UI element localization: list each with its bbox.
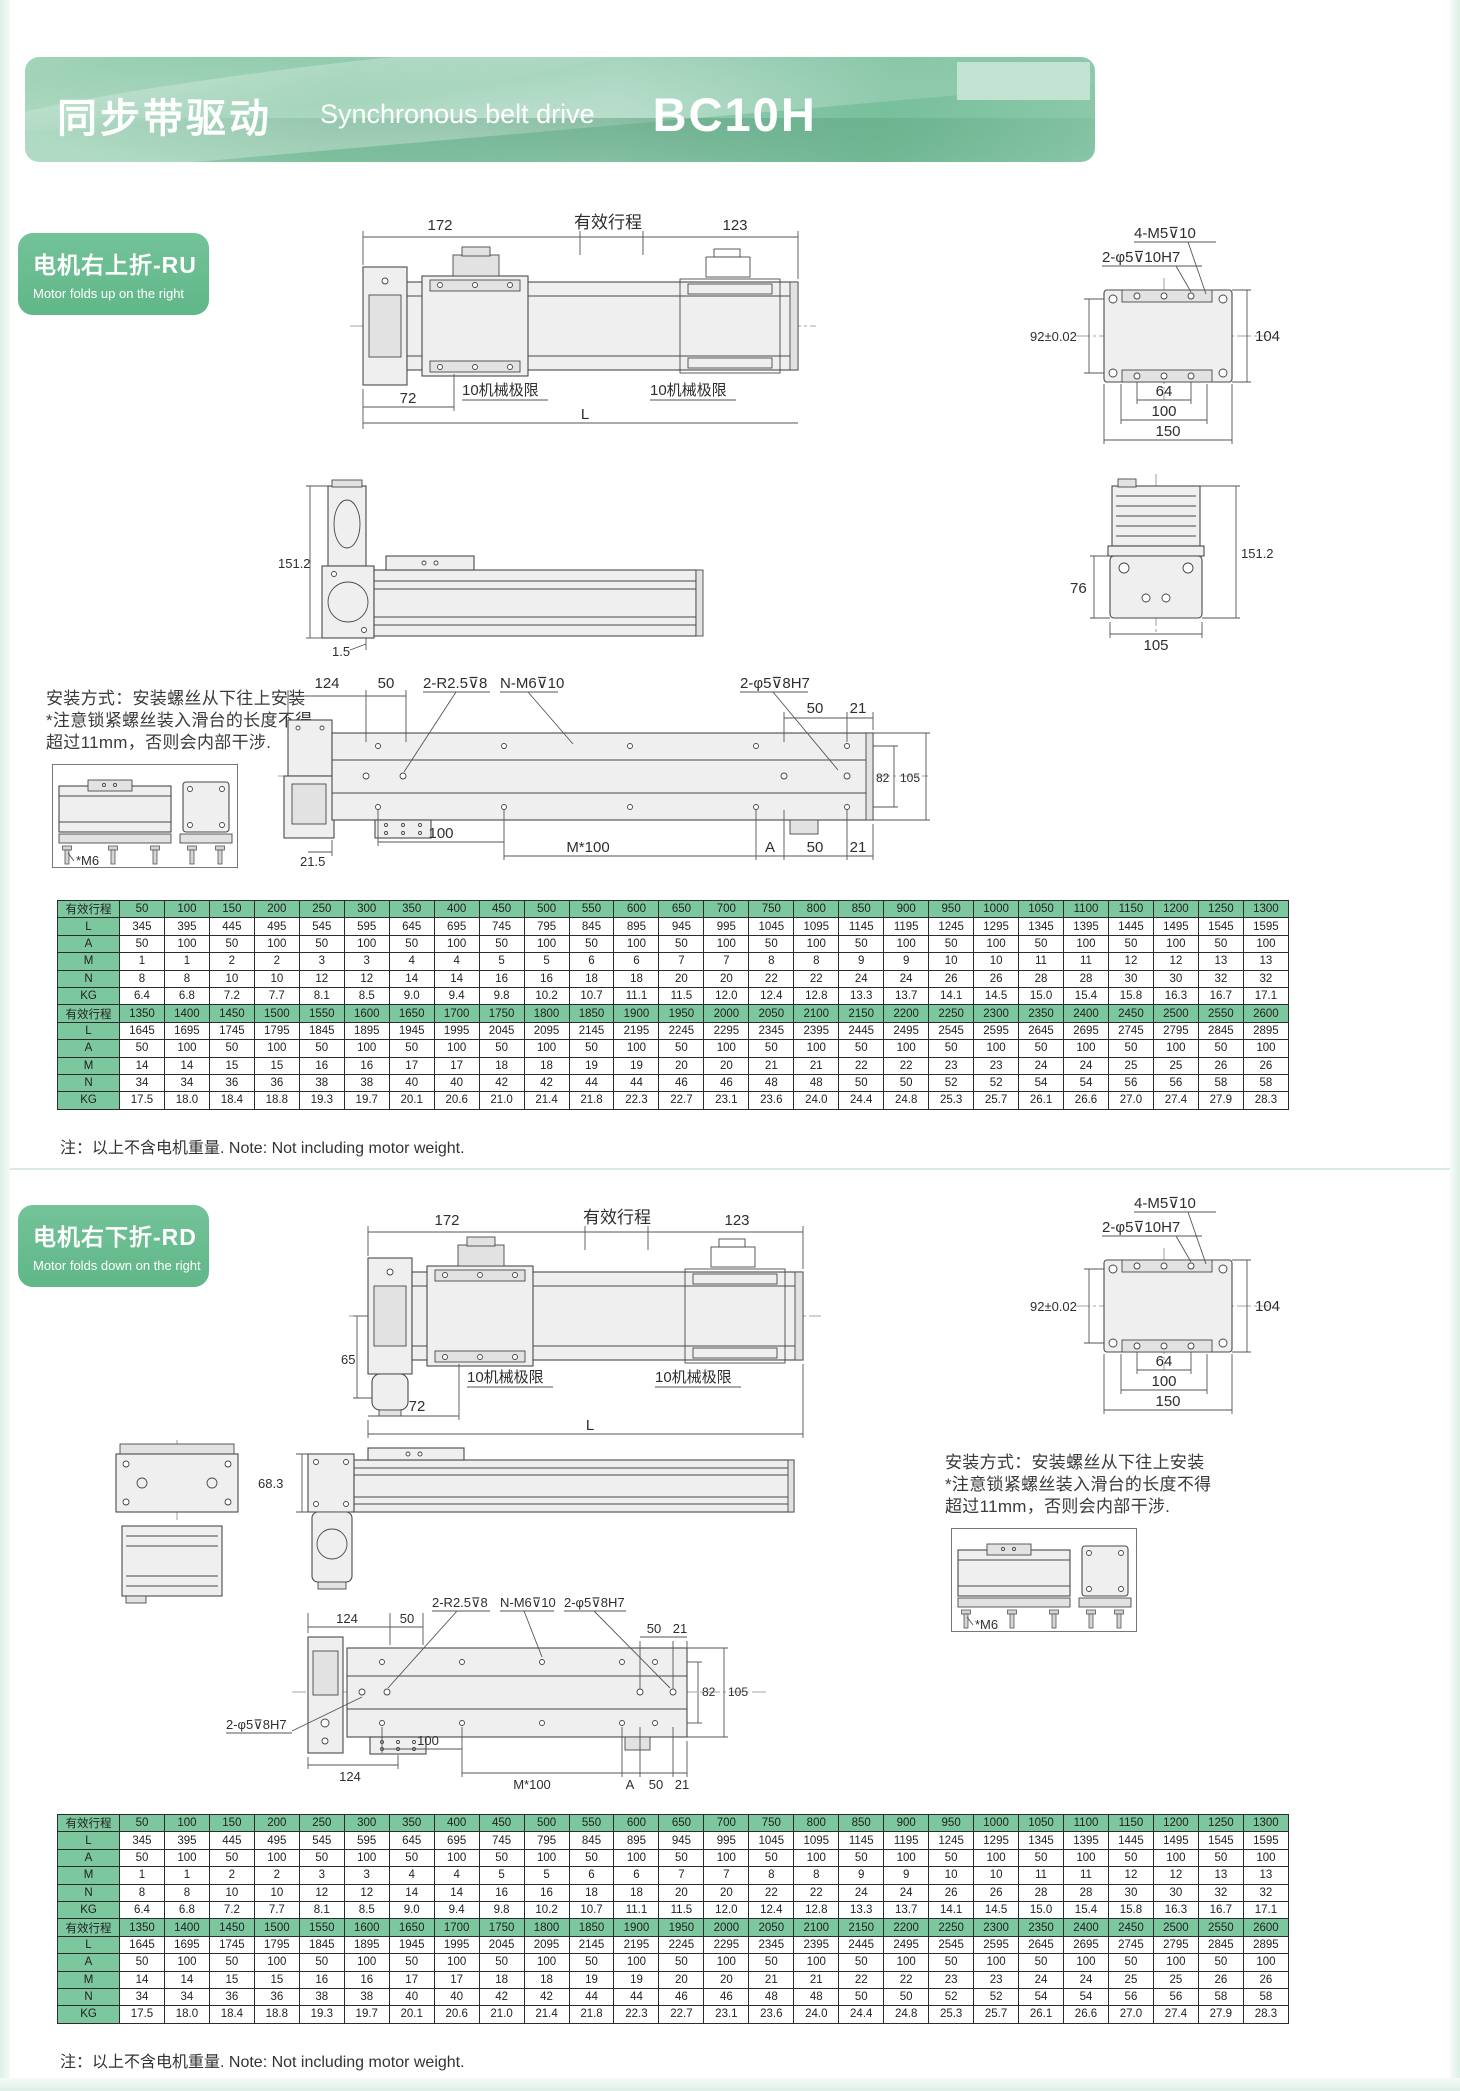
table-cell: 695 (434, 1832, 479, 1849)
table-cell: 100 (614, 1849, 659, 1866)
table-cell: 2495 (884, 1022, 929, 1039)
table-cell: 100 (794, 1849, 839, 1866)
table-cell: 500 (524, 1815, 569, 1832)
table-cell: 2295 (704, 1022, 749, 1039)
table-cell: 20.1 (389, 2006, 434, 2023)
table-cell: 850 (839, 901, 884, 918)
table-cell: 1345 (1019, 918, 1064, 935)
table-cell: 23.6 (749, 1092, 794, 1109)
table-cell: 6.4 (120, 1901, 165, 1918)
row-label: M (58, 1971, 120, 1988)
mounting-note-line: 超过11mm，否则会内部干涉. (46, 732, 316, 754)
table-cell: 12 (299, 1884, 344, 1901)
dim-1-5: 1.5 (332, 644, 350, 658)
table-cell: 24 (1064, 1057, 1109, 1074)
table-cell: 100 (254, 935, 299, 952)
row-label: A (58, 1040, 120, 1057)
table-cell: 2145 (569, 1936, 614, 1953)
table-cell: 100 (1243, 935, 1288, 952)
table-cell: 18 (614, 1884, 659, 1901)
table-cell: 23.6 (749, 2006, 794, 2023)
table-cell: 18 (614, 970, 659, 987)
table-cell: 300 (344, 901, 389, 918)
table-cell: 18 (524, 1971, 569, 1988)
table-cell: 14.1 (929, 987, 974, 1004)
table-row: N881010121214141616181820202222242426262… (58, 1884, 1289, 1901)
table-cell: 1595 (1243, 918, 1288, 935)
mounting-note-rd: 安装方式：安装螺丝从下往上安装 *注意锁紧螺丝装入滑台的长度不得 超过11mm，… (945, 1452, 1215, 1632)
table-cell: 12 (1108, 953, 1153, 970)
table-cell: 10.7 (569, 987, 614, 1004)
table-row: M141415151616171718181919202021212222232… (58, 1057, 1289, 1074)
table-cell: 50 (389, 1954, 434, 1971)
table-cell: 17 (389, 1971, 434, 1988)
table-row: M1122334455667788991010111112121313 (58, 953, 1289, 970)
table-cell: 1295 (974, 918, 1019, 935)
table-cell: 2150 (839, 1005, 884, 1022)
table-cell: 11.5 (659, 1901, 704, 1918)
table-cell: 50 (839, 1074, 884, 1091)
table-cell: 8 (794, 953, 839, 970)
table-cell: 10.7 (569, 1901, 614, 1918)
table-cell: 28 (1064, 970, 1109, 987)
table-cell: 22.3 (614, 2006, 659, 2023)
table-cell: 1 (120, 1867, 165, 1884)
table-cell: 27.9 (1198, 2006, 1243, 2023)
table-cell: 750 (749, 901, 794, 918)
table-cell: 36 (254, 1074, 299, 1091)
table-cell: 2595 (974, 1936, 1019, 1953)
dim-124: 124 (314, 675, 339, 692)
dim-mech-limit-right: 10机械极限 (650, 382, 727, 399)
table-cell: 1600 (344, 1919, 389, 1936)
table-cell: 16 (299, 1971, 344, 1988)
rd-top-shapes (349, 1237, 821, 1416)
table-cell: 12.4 (749, 987, 794, 1004)
table-cell: 1350 (120, 1919, 165, 1936)
table-cell: 9 (884, 953, 929, 970)
table-cell: 700 (704, 1815, 749, 1832)
table-cell: 25.3 (929, 2006, 974, 2023)
dim-A: A (765, 839, 775, 856)
table-cell: 2250 (929, 1919, 974, 1936)
dim-151-2: 151.2 (278, 556, 311, 571)
table-cell: 18.4 (209, 1092, 254, 1109)
table-cell: 22 (749, 1884, 794, 1901)
table-cell: 50 (209, 1954, 254, 1971)
table-cell: 100 (974, 1954, 1019, 1971)
table-cell: 12 (1153, 1867, 1198, 1884)
table-cell: 50 (929, 935, 974, 952)
table-cell: 20 (704, 1971, 749, 1988)
table-cell: 56 (1153, 1074, 1198, 1091)
table-cell: 50 (659, 935, 704, 952)
table-cell: 1395 (1064, 1832, 1109, 1849)
table-cell: 1745 (209, 1022, 254, 1039)
dim-50: 50 (807, 700, 824, 717)
table-cell: 12.8 (794, 987, 839, 1004)
table-cell: 2600 (1243, 1919, 1288, 1936)
table-cell: 5 (479, 1867, 524, 1884)
table-cell: 1645 (120, 1936, 165, 1953)
dim-2-r2-5: 2-R2.5⊽8 (423, 675, 487, 692)
table-cell: 1845 (299, 1022, 344, 1039)
table-cell: 22 (884, 1057, 929, 1074)
table-cell: 50 (1198, 1954, 1243, 1971)
table-row: KG6.46.87.27.78.18.59.09.49.810.210.711.… (58, 1901, 1289, 1918)
table-cell: 40 (434, 1988, 479, 2005)
dim-stroke-label: 有效行程 (583, 1208, 651, 1227)
table-cell: 50 (209, 1040, 254, 1057)
table-cell: 800 (794, 1815, 839, 1832)
table-cell: 2250 (929, 1005, 974, 1022)
dim-21: 21 (850, 839, 867, 856)
table-cell: 2150 (839, 1919, 884, 1936)
table-cell: 595 (344, 918, 389, 935)
table-cell: 1795 (254, 1022, 299, 1039)
badge-subtitle: Motor folds down on the right (33, 1258, 201, 1273)
table-cell: 900 (884, 901, 929, 918)
table-cell: 1950 (659, 1919, 704, 1936)
table-cell: 48 (749, 1988, 794, 2005)
table-cell: 11 (1064, 1867, 1109, 1884)
table-cell: 1450 (209, 1005, 254, 1022)
table-cell: 4 (389, 953, 434, 970)
table-cell: 50 (389, 935, 434, 952)
table-cell: 2695 (1064, 1022, 1109, 1039)
table-cell: 19.7 (344, 1092, 389, 1109)
table-cell: 17.1 (1243, 1901, 1288, 1918)
table-cell: 8 (164, 1884, 209, 1901)
table-cell: 25.7 (974, 2006, 1019, 2023)
table-cell: 150 (209, 1815, 254, 1832)
table-cell: 2345 (749, 1936, 794, 1953)
table-cell: 50 (120, 935, 165, 952)
table-cell: 50 (839, 1988, 884, 2005)
table-cell: 100 (344, 935, 389, 952)
mounting-diagram: *M6 (951, 1528, 1137, 1632)
table-cell: 6.8 (164, 987, 209, 1004)
table-cell: 2450 (1108, 1005, 1153, 1022)
table-cell: 1850 (569, 1919, 614, 1936)
table-cell: 40 (434, 1074, 479, 1091)
table-cell: 4 (434, 1867, 479, 1884)
table-cell: 36 (209, 1074, 254, 1091)
table-cell: 18 (479, 1971, 524, 1988)
table-cell: 16 (479, 970, 524, 987)
table-cell: 23 (929, 1971, 974, 1988)
table-cell: 2 (254, 953, 299, 970)
table-cell: 50 (1108, 935, 1153, 952)
table-cell: 18.0 (164, 1092, 209, 1109)
table-cell: 50 (1019, 1954, 1064, 1971)
table-cell: 21.4 (524, 2006, 569, 2023)
table-row: N881010121214141616181820202222242426262… (58, 970, 1289, 987)
table-cell: 15.4 (1064, 1901, 1109, 1918)
table-cell: 10.2 (524, 987, 569, 1004)
table-cell: 19.7 (344, 2006, 389, 2023)
table-cell: 22 (794, 1884, 839, 1901)
dim-stroke-label: 有效行程 (574, 213, 642, 232)
table-cell: 50 (839, 935, 884, 952)
table-cell: 28.3 (1243, 2006, 1288, 2023)
table-cell: 100 (1153, 1040, 1198, 1057)
table-cell: 2300 (974, 1919, 1019, 1936)
table-cell: 2195 (614, 1022, 659, 1039)
table-cell: 8.5 (344, 1901, 389, 1918)
table-cell: 34 (164, 1988, 209, 2005)
badge-title: 电机右上折-RU (33, 246, 201, 280)
dim-105: 105 (900, 771, 920, 785)
table-cell: 845 (569, 1832, 614, 1849)
table-cell: 16.3 (1153, 1901, 1198, 1918)
row-label: 有效行程 (58, 901, 120, 918)
table-cell: 345 (120, 918, 165, 935)
table-cell: 19 (614, 1971, 659, 1988)
table-cell: 445 (209, 1832, 254, 1849)
table-cell: 1300 (1243, 901, 1288, 918)
table-cell: 26.1 (1019, 2006, 1064, 2023)
table-cell: 2895 (1243, 1022, 1288, 1039)
table-row: 有效行程135014001450150015501600165017001750… (58, 1919, 1289, 1936)
table-cell: 24 (839, 970, 884, 987)
table-cell: 22 (749, 970, 794, 987)
table-cell: 2645 (1019, 1022, 1064, 1039)
table-cell: 25.3 (929, 1092, 974, 1109)
table-cell: 7 (659, 953, 704, 970)
row-label: N (58, 1074, 120, 1091)
table-cell: 50 (659, 1849, 704, 1866)
table-cell: 20 (704, 1884, 749, 1901)
table-cell: 1200 (1153, 901, 1198, 918)
table-note-rd: 注：以上不含电机重量. Note: Not including motor we… (60, 2048, 465, 2072)
table-cell: 10 (209, 1884, 254, 1901)
dim-92: 92±0.02 (1030, 1299, 1077, 1314)
table-cell: 21 (794, 1971, 839, 1988)
table-cell: 26.6 (1064, 2006, 1109, 2023)
table-cell: 13.7 (884, 987, 929, 1004)
row-label: KG (58, 2006, 120, 2023)
dim-124: 124 (339, 1769, 361, 1784)
table-cell: 24.4 (839, 2006, 884, 2023)
table-cell: 100 (794, 1954, 839, 1971)
table-cell: 13 (1243, 953, 1288, 970)
table-cell: 50 (209, 1849, 254, 1866)
table-cell: 24 (1019, 1971, 1064, 1988)
table-cell: 6.4 (120, 987, 165, 1004)
table-cell: 1250 (1198, 1815, 1243, 1832)
table-cell: 14 (434, 1884, 479, 1901)
dim-L: L (581, 406, 589, 423)
dim-64: 64 (1156, 383, 1173, 400)
table-cell: 12 (1153, 953, 1198, 970)
table-cell: 250 (299, 1815, 344, 1832)
table-cell: 6 (569, 953, 614, 970)
table-cell: 13 (1198, 953, 1243, 970)
table-cell: 19 (614, 1057, 659, 1074)
table-cell: 58 (1198, 1074, 1243, 1091)
table-cell: 18.8 (254, 1092, 299, 1109)
table-cell: 22 (839, 1057, 884, 1074)
table-cell: 50 (929, 1954, 974, 1971)
table-cell: 2350 (1019, 1919, 1064, 1936)
table-cell: 100 (614, 1954, 659, 1971)
table-cell: 34 (164, 1074, 209, 1091)
table-cell: 15.0 (1019, 987, 1064, 1004)
rd-slider-pattern-drawing: 4-M5⊽10 2-φ5⊽10H7 92±0.02 104 64 100 (1018, 1192, 1303, 1437)
table-row: L345395445495545595645695745795845895945… (58, 1832, 1289, 1849)
table-cell: 20 (659, 1971, 704, 1988)
table-cell: 50 (1019, 1040, 1064, 1057)
table-cell: 1495 (1153, 918, 1198, 935)
table-cell: 950 (929, 901, 974, 918)
dim-A: A (626, 1777, 635, 1792)
table-cell: 3 (344, 953, 389, 970)
table-cell: 16 (524, 970, 569, 987)
table-cell: 2145 (569, 1022, 614, 1039)
table-cell: 6 (614, 1867, 659, 1884)
table-cell: 56 (1153, 1988, 1198, 2005)
table-cell: 945 (659, 918, 704, 935)
table-cell: 800 (794, 901, 839, 918)
table-cell: 1000 (974, 901, 1019, 918)
table-cell: 44 (614, 1074, 659, 1091)
table-cell: 54 (1019, 1074, 1064, 1091)
table-cell: 46 (659, 1074, 704, 1091)
table-cell: 10 (929, 1867, 974, 1884)
table-cell: 15.4 (1064, 987, 1109, 1004)
table-cell: 2245 (659, 1022, 704, 1039)
table-cell: 9.8 (479, 987, 524, 1004)
dim-2-phi5-10h7: 2-φ5⊽10H7 (1102, 249, 1180, 266)
table-cell: 2 (254, 1867, 299, 1884)
row-label: N (58, 1988, 120, 2005)
table-cell: 350 (389, 901, 434, 918)
table-cell: 495 (254, 1832, 299, 1849)
table-cell: 4 (389, 1867, 434, 1884)
table-cell: 1650 (389, 1919, 434, 1936)
table-cell: 15 (209, 1971, 254, 1988)
table-cell: 2200 (884, 1005, 929, 1022)
table-cell: 14.1 (929, 1901, 974, 1918)
table-cell: 2050 (749, 1919, 794, 1936)
table-cell: 2195 (614, 1936, 659, 1953)
table-cell: 26 (1198, 1057, 1243, 1074)
table-cell: 2245 (659, 1936, 704, 1953)
row-label: L (58, 918, 120, 935)
table-cell: 2100 (794, 1005, 839, 1022)
table-cell: 13 (1198, 1867, 1243, 1884)
table-cell: 1900 (614, 1919, 659, 1936)
page-title-zh: 同步带驱动 (57, 86, 272, 144)
table-cell: 24.0 (794, 2006, 839, 2023)
table-cell: 17.5 (120, 1092, 165, 1109)
table-cell: 10 (254, 970, 299, 987)
table-cell: 1650 (389, 1005, 434, 1022)
table-cell: 22.3 (614, 1092, 659, 1109)
dim-76: 76 (1070, 580, 1087, 597)
table-cell: 1950 (659, 1005, 704, 1022)
table-cell: 100 (164, 1954, 209, 1971)
table-cell: 15.0 (1019, 1901, 1064, 1918)
table-cell: 50 (120, 1040, 165, 1057)
table-cell: 995 (704, 1832, 749, 1849)
table-cell: 2 (209, 1867, 254, 1884)
table-note-ru: 注：以上不含电机重量. Note: Not including motor we… (60, 1134, 465, 1158)
dim-172: 172 (427, 217, 452, 234)
table-cell: 11.1 (614, 1901, 659, 1918)
table-cell: 7.2 (209, 987, 254, 1004)
table-cell: 22.7 (659, 1092, 704, 1109)
table-cell: 1795 (254, 1936, 299, 1953)
table-cell: 2400 (1064, 1919, 1109, 1936)
table-cell: 21 (749, 1971, 794, 1988)
table-cell: 10 (254, 1884, 299, 1901)
table-cell: 1195 (884, 1832, 929, 1849)
table-cell: 600 (614, 901, 659, 918)
dim-2-r2-5: 2-R2.5⊽8 (432, 1595, 488, 1610)
table-cell: 18.4 (209, 2006, 254, 2023)
table-cell: 2300 (974, 1005, 1019, 1022)
table-cell: 27.4 (1153, 2006, 1198, 2023)
table-cell: 32 (1243, 970, 1288, 987)
rd-end-left-shapes (116, 1440, 238, 1603)
table-cell: 50 (749, 1954, 794, 1971)
table-cell: 16 (299, 1057, 344, 1074)
table-row: L164516951745179518451895194519952045209… (58, 1022, 1289, 1039)
page-title-en: Synchronous belt drive (320, 99, 595, 130)
table-cell: 50 (1198, 1849, 1243, 1866)
table-cell: 850 (839, 1815, 884, 1832)
table-cell: 2595 (974, 1022, 1019, 1039)
table-cell: 9.4 (434, 1901, 479, 1918)
dim-104: 104 (1255, 328, 1280, 345)
table-cell: 895 (614, 918, 659, 935)
table-row: A501005010050100501005010050100501005010… (58, 1849, 1289, 1866)
table-cell: 1000 (974, 1815, 1019, 1832)
table-cell: 100 (1064, 1849, 1109, 1866)
dim-2-phi5-8h7: 2-φ5⊽8H7 (564, 1595, 625, 1610)
dim-m6: *M6 (975, 1617, 998, 1632)
table-cell: 595 (344, 1832, 389, 1849)
mounting-diagram: *M6 (52, 764, 238, 868)
row-label: N (58, 970, 120, 987)
table-cell: 17.5 (120, 2006, 165, 2023)
table-cell: 7.7 (254, 1901, 299, 1918)
table-cell: 2100 (794, 1919, 839, 1936)
table-row: KG17.518.018.418.819.319.720.120.621.021… (58, 1092, 1289, 1109)
table-cell: 10 (974, 1867, 1019, 1884)
table-cell: 9.0 (389, 1901, 434, 1918)
table-cell: 14 (164, 1057, 209, 1074)
table-cell: 100 (344, 1040, 389, 1057)
table-cell: 12.0 (704, 987, 749, 1004)
table-cell: 1945 (389, 1936, 434, 1953)
dim-82: 82 (876, 771, 890, 785)
mounting-note-line: *注意锁紧螺丝装入滑台的长度不得 (945, 1474, 1215, 1496)
table-cell: 1045 (749, 1832, 794, 1849)
spec-table-ru: 有效行程501001502002503003504004505005506006… (57, 900, 1289, 1110)
table-cell: 100 (614, 1040, 659, 1057)
table-cell: 20 (659, 970, 704, 987)
row-label: 有效行程 (58, 1919, 120, 1936)
table-cell: 100 (704, 935, 749, 952)
table-cell: 14.5 (974, 987, 1019, 1004)
dim-50: 50 (647, 1621, 661, 1636)
row-label: KG (58, 1092, 120, 1109)
table-cell: 19.3 (299, 2006, 344, 2023)
table-cell: 3 (344, 1867, 389, 1884)
